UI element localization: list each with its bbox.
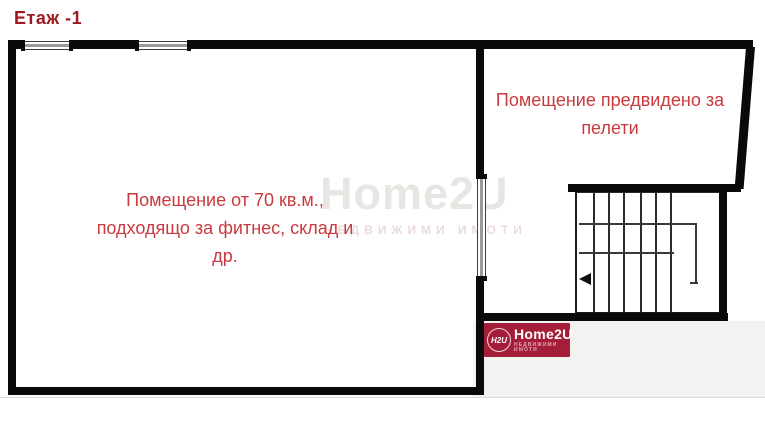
logo-brand-text: Home2U xyxy=(514,327,573,341)
floorplan-canvas: Етаж -1 Home2U НЕДВИЖИМИ ИМОТИ xyxy=(0,0,765,424)
wall-stair-right xyxy=(719,184,727,321)
home2u-logo-text: Home2U НЕДВИЖИМИ ИМОТИ xyxy=(514,327,573,353)
stair-walkline-horizontal xyxy=(579,223,697,225)
room-label-main-line3: др. xyxy=(60,242,390,270)
wall-bottom-main-room xyxy=(8,387,484,395)
stair-walkline-vertical xyxy=(695,223,697,284)
wall-top-segment-2 xyxy=(71,40,137,49)
window-cap xyxy=(187,40,191,51)
plan-bottom-edge-line xyxy=(0,397,765,398)
window-cap xyxy=(21,40,25,51)
staircase xyxy=(575,192,721,314)
stair-midline xyxy=(579,252,674,254)
room-label-pellets-line1: Помещение предвидено за xyxy=(484,86,736,114)
wall-top-segment-3 xyxy=(189,40,753,49)
wall-left-exterior xyxy=(8,40,16,395)
window-top-1 xyxy=(23,41,71,50)
logo-subtitle-text: НЕДВИЖИМИ ИМОТИ xyxy=(514,343,573,353)
window-cap xyxy=(69,40,73,51)
home2u-logo: H2U Home2U НЕДВИЖИМИ ИМОТИ xyxy=(484,323,570,357)
window-pane xyxy=(137,44,189,47)
window-pane xyxy=(480,177,483,278)
room-label-pellets-line2: пелети xyxy=(484,114,736,142)
room-label-main: Помещение от 70 кв.м., подходящо за фитн… xyxy=(60,186,390,270)
window-pane xyxy=(23,44,71,47)
wall-divider-upper xyxy=(476,40,484,177)
stair-walkline-endtick xyxy=(690,282,698,284)
wall-right-slanted xyxy=(735,47,755,189)
window-cap xyxy=(135,40,139,51)
window-divider xyxy=(477,177,486,278)
window-cap xyxy=(476,174,487,179)
home2u-logo-mark-icon: H2U xyxy=(487,328,511,352)
floor-title: Етаж -1 xyxy=(14,8,82,29)
wall-divider-lower xyxy=(476,278,484,395)
room-label-main-line2: подходящо за фитнес, склад и xyxy=(60,214,390,242)
stair-direction-arrow-icon xyxy=(579,273,591,285)
room-label-main-line1: Помещение от 70 кв.м., xyxy=(60,186,390,214)
wall-bottom-right-section xyxy=(476,313,728,321)
window-cap xyxy=(476,276,487,281)
window-top-2 xyxy=(137,41,189,50)
wall-stair-top xyxy=(568,184,741,192)
room-label-pellets: Помещение предвидено за пелети xyxy=(484,86,736,142)
